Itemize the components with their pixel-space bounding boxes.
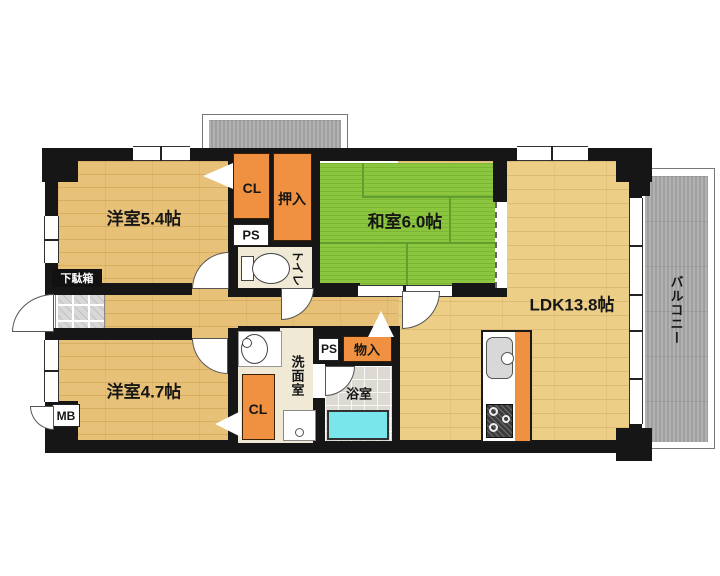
entrance-door-arc — [12, 294, 54, 332]
window-tick — [44, 370, 59, 372]
door-opening — [280, 328, 313, 338]
label-bathroom: 浴室 — [346, 384, 372, 403]
window-tick — [629, 378, 643, 380]
wall — [312, 283, 360, 297]
stove-burner-icon — [502, 415, 510, 423]
tatami-line — [362, 196, 495, 198]
label-washroom: 洗面室 — [288, 355, 307, 397]
window-tick — [629, 330, 643, 332]
room-label-japanese: 和室6.0帖 — [368, 208, 443, 233]
window-tick — [629, 294, 643, 296]
kitchen-faucet-icon — [501, 352, 514, 365]
room-label-western-1: 洋室5.4帖 — [107, 205, 182, 230]
window-tick — [551, 146, 553, 161]
kitchen-counter-side — [515, 332, 530, 441]
upper-alcove — [209, 120, 341, 151]
label-toilet: トイレ — [290, 250, 307, 286]
label-closet-2: CL — [249, 401, 268, 417]
label-closet-1: CL — [243, 180, 262, 196]
label-pipe-space-1: PS — [242, 228, 259, 243]
balcony-sliding-window — [629, 198, 643, 424]
label-balcony: バルコニー — [667, 275, 686, 345]
drain-icon — [295, 428, 304, 437]
label-mono-ire: 物入 — [354, 340, 380, 359]
label-shoe-cabinet: 下駄箱 — [61, 270, 94, 286]
label-pipe-space-2: PS — [321, 342, 337, 356]
label-oshiire: 押入 — [278, 189, 306, 209]
window-tick — [629, 245, 643, 247]
tatami-line — [362, 163, 364, 198]
wall — [45, 440, 622, 453]
wall — [629, 422, 642, 444]
window-tick — [160, 146, 162, 161]
wall — [45, 161, 58, 218]
bathtub-icon — [327, 410, 389, 440]
room-label-ldk: LDK13.8帖 — [529, 291, 614, 316]
window-tick — [44, 239, 59, 241]
floor-plan: 洋室5.4帖 和室6.0帖 LDK13.8帖 洋室4.7帖 CL 押入 PS ト… — [0, 0, 720, 576]
door-opening — [313, 364, 325, 398]
washbasin-faucet-icon — [242, 338, 252, 348]
tatami-line — [406, 242, 408, 288]
stove-burner-icon — [489, 423, 498, 432]
wall — [493, 161, 507, 202]
stove-burner-icon — [489, 407, 498, 416]
tatami-line — [449, 196, 451, 244]
wall — [629, 178, 642, 200]
meter-box-door-arc — [30, 406, 54, 430]
room-label-western-2: 洋室4.7帖 — [107, 378, 182, 403]
toilet-bowl-icon — [252, 253, 290, 284]
fusuma-sliding-door — [495, 202, 507, 288]
label-meter-box: MB — [57, 409, 76, 423]
wall-corner — [616, 148, 652, 182]
